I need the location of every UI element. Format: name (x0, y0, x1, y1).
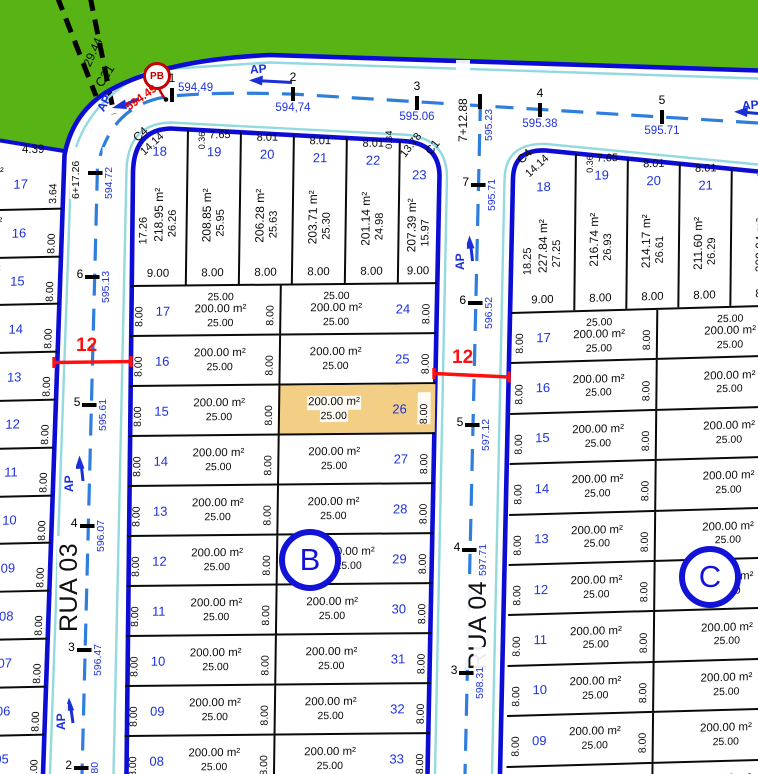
lot-rotated-dims: 206.28 m²25.63 (253, 166, 280, 267)
lot-parcel[interactable]: 8.0010200.00 m²25.008.00 (507, 663, 653, 715)
lot-parcel[interactable]: 200.00 m²25.00288.00 (276, 484, 434, 534)
lot-bottom-dim: 8.00 (693, 289, 716, 307)
lot-parcel[interactable]: 8.0016200.00 m²25.008.00 (129, 336, 279, 385)
lot-area: 200.00 m² (194, 347, 246, 361)
lot-bottom-dim: 25.00 (585, 386, 611, 399)
lot-bottom-dim: 25.00 (582, 739, 608, 752)
lot-bottom-dim: 25.00 (202, 711, 228, 724)
lot-parcel[interactable]: 23207.39 m²15.979.00 (397, 141, 439, 283)
lot-row: 8.0010200.00 m²25.008.00200.00 m²25.0031… (125, 632, 432, 685)
station-tick (465, 423, 480, 427)
lot-row-strip[interactable]: 138.00 (0, 351, 57, 400)
lot-parcel[interactable]: 8.0009200.00 m²25.008.00 (507, 713, 653, 765)
lot-top-dim: 25.00 (586, 316, 612, 329)
lot-parcel[interactable]: 200.00 m²25.00268.00 (278, 384, 436, 434)
lot-side-dim: 8.00 (512, 624, 523, 656)
station-number: 4 (530, 87, 550, 99)
lot-rotated-dims: 17.26218.95 m²26.26 (138, 163, 179, 268)
lot-area: 200.00 m² (569, 675, 621, 690)
lot-number: 16 (6, 225, 33, 241)
lot-number: 06 (0, 703, 16, 719)
station-number: 5 (447, 416, 463, 428)
lot-dims: 25.00200.00 m²25.00 (181, 291, 261, 330)
lot-parcel[interactable]: 8.0011200.00 m²25.008.00 (508, 612, 654, 664)
lot-dims: 200.00 m²25.00 (663, 368, 758, 398)
lot-parcel[interactable]: 8.0013200.00 m²25.008.00 (509, 512, 655, 564)
lot-right-dim: 26.93 (603, 233, 614, 261)
lot-dims: 200.00 m²25.00 (560, 473, 635, 501)
lot-side-dim: 8.00 (35, 548, 47, 588)
station-tick (415, 96, 419, 110)
lot-dims: 200.00 m²25.00 (176, 647, 255, 674)
lot-row-strip[interactable]: ²168.00 (0, 207, 62, 256)
station-elevation: 596.07 (95, 500, 108, 552)
lot-side-dim: 8.00 (128, 745, 139, 774)
lot-bottom-dim: 25.00 (319, 609, 345, 622)
lot-row: 8.0013200.00 m²25.008.00200.00 m²25.0028… (127, 482, 434, 535)
lot-parcel[interactable]: 8.0009200.00 m²25.008.00 (125, 686, 275, 735)
lot-dims: 200.00 m²25.00 (559, 574, 634, 602)
lot-area: 200.00 m² (188, 747, 240, 761)
lot-side-dim: 8.00 (259, 694, 270, 726)
lot-parcel[interactable]: 1817.26218.95 m²26.269.00 (131, 131, 187, 285)
lot-left-dim: 17.26 (138, 217, 149, 245)
station-elevation: 596.80 (89, 742, 102, 774)
lot-area: 211.60 m² (692, 217, 705, 270)
lot-side-dim: 8.00 (264, 344, 275, 376)
lot-area: 208.85 m² (200, 188, 213, 242)
lot-parcel[interactable]: 200.00 m²25.00 (651, 759, 758, 774)
lot-parcel[interactable]: 200.00 m²25.00 (652, 659, 758, 711)
lot-parcel[interactable]: 8.0120214.17 m²26.618.00 (625, 157, 679, 308)
lot-row: 8.0016200.00 m²25.008.00200.00 m²25.0025… (129, 332, 436, 385)
station-elevation: 597.12 (480, 399, 493, 451)
lot-top-dim: 8.01 (643, 158, 665, 171)
lot-top-dims: 8.01 (257, 132, 279, 147)
block-b-badge: B (279, 529, 341, 591)
lot-area: 200.00 m² (572, 423, 624, 438)
lot-side-dim: 8.00 (421, 292, 432, 324)
lot-side-dim: 8.00 (419, 442, 430, 474)
lot-dims: 200.00 m²25.00 (663, 418, 758, 448)
lot-rotated-dims: 18.25227.84 m²27.25 (522, 198, 563, 295)
lot-left-dim: 18.25 (523, 248, 534, 276)
lot-area-fragment: ² (0, 216, 2, 228)
lot-parcel[interactable]: 8.0015200.00 m²25.008.00 (510, 411, 656, 463)
lot-number: 15 (148, 403, 174, 418)
lot-parcel[interactable]: 8.0013200.00 m²25.008.00 (127, 486, 277, 535)
lot-side-dim: 8.00 (417, 592, 428, 624)
lot-parcel[interactable]: 200.00 m²25.00 (655, 407, 758, 459)
lot-side-dim: 8.00 (131, 495, 142, 527)
lot-bottom-dim: 25.00 (203, 611, 229, 624)
station-tick (462, 548, 477, 552)
lot-top-dims: 8.01 (309, 135, 331, 150)
lot-parcel[interactable]: 8.0122209.04 m²25.978.00 (729, 167, 758, 306)
lot-dims: 200.00 m²25.00 (660, 670, 758, 700)
lot-top-dim: 25.00 (207, 291, 233, 304)
lot-side-dim: 8.00 (512, 574, 523, 606)
lot-dims: 200.00 m²25.00 (179, 447, 258, 474)
lot-side-dim: 8.00 (134, 295, 145, 327)
lot-area: 200.00 m² (308, 446, 360, 460)
lot-bottom-dim: 8.00 (589, 292, 612, 310)
lot-row-strip[interactable]: 118.00 (0, 446, 54, 495)
lot-top-dims: 8.01 (643, 158, 665, 174)
lot-row-strip[interactable]: 058.00 (0, 733, 44, 774)
section-line-rua04 (434, 368, 509, 383)
lot-number: 05 (0, 751, 15, 767)
lot-parcel[interactable]: 200.00 m²25.00258.00 (278, 334, 436, 384)
lot-number: 17 (7, 177, 34, 193)
lot-row-strip[interactable]: 128.00 (0, 399, 55, 448)
lot-row-strip[interactable]: 098.00 (0, 542, 51, 591)
lot-parcel[interactable]: 8.0012200.00 m²25.008.00 (127, 536, 277, 585)
station-elevation: 594.72 (103, 147, 116, 199)
lot-area: 200.00 m² (571, 524, 623, 539)
lot-parcel[interactable]: 25.00200.00 m²25.00248.00 (279, 284, 437, 334)
lot-number: 08 (144, 753, 170, 768)
pb-marker-dot (164, 97, 169, 102)
lot-row-strip[interactable]: ²158.00 (0, 255, 60, 304)
lot-number: 19 (594, 167, 609, 186)
station-elevation: 596.47 (92, 624, 105, 676)
lot-rotated-dims: 209.04 m²25.97 (754, 202, 758, 289)
lot-bottom-dim: 25.00 (583, 638, 609, 651)
lot-number: 10 (527, 682, 553, 698)
lot-dims: 200.00 m²25.00 (285, 446, 383, 473)
lot-bottom-dim: 9.00 (147, 268, 170, 285)
lot-side-dim: 8.00 (261, 594, 272, 626)
block-c-badge: C (679, 546, 741, 608)
lot-side-dim: 8.00 (417, 542, 428, 574)
station-number: 5 (64, 396, 80, 408)
station-tick (170, 88, 174, 102)
lot-side-dim: 8.00 (414, 742, 425, 774)
lot-number: 12 (146, 553, 172, 568)
lot-parcel[interactable]: 0.367.6519208.85 m²25.958.00 (185, 129, 240, 285)
lot-side-dim: 8.00 (263, 444, 274, 476)
lot-right-dim: 26.29 (707, 237, 718, 265)
block-b-letter: B (300, 542, 321, 578)
lot-bottom-dim: 25.00 (321, 459, 347, 472)
lot-side-dim: 8.00 (265, 294, 276, 326)
lot-side-dim: 8.00 (639, 520, 650, 552)
station-number: 6 (450, 294, 466, 306)
lot-dims: 200.00 m²25.00 (177, 547, 256, 574)
lot-number: 20 (646, 173, 661, 192)
station-tick (88, 171, 103, 175)
lot-row: 8.0009200.00 m²25.008.00200.00 m²25.00 (507, 707, 758, 765)
lot-bottom-dim: 25.00 (714, 635, 740, 648)
lot-number: 31 (385, 651, 411, 666)
station-elevation: 595.61 (97, 379, 110, 431)
lot-dims: 200.00 m²25.00 (557, 725, 632, 753)
station-tick (82, 403, 97, 407)
lot-side-dim: 8.00 (638, 671, 649, 703)
lot-bottom-dim: 25.00 (322, 359, 348, 372)
lot-parcel[interactable]: 8.0016200.00 m²25.008.00 (510, 360, 656, 412)
lot-dims: 200.00 m²25.00 (558, 624, 633, 652)
station-number: 5 (652, 94, 672, 106)
lot-parcel[interactable]: 200.00 m²25.00 (654, 457, 758, 509)
station-elevation: 597.71 (477, 524, 490, 576)
lot-row: 8.001725.00200.00 m²25.008.0025.00200.00… (130, 282, 437, 335)
lot-parcel[interactable]: 8.0121211.60 m²26.298.00 (677, 162, 731, 307)
lot-parcel[interactable]: 200.00 m²25.00 (655, 356, 758, 408)
station-number: 2 (283, 71, 303, 83)
lot-top-side-dim: 0.36 (198, 129, 207, 149)
lot-area: 214.17 m² (640, 215, 653, 269)
lot-side-dim: 8.00 (638, 621, 649, 653)
lot-number: 30 (386, 601, 412, 616)
lot-parcel[interactable]: 8.0008200.00 m²25.008.00 (506, 764, 652, 774)
lot-number: 08 (0, 608, 20, 624)
lot-side-dim: 8.00 (261, 544, 272, 576)
lot-bottom-dim: 25.00 (715, 483, 741, 496)
lot-bottom-dim: 25.00 (713, 685, 739, 698)
lot-number: 23 (412, 167, 427, 186)
lot-bottom-dim: 25.00 (318, 659, 344, 672)
lot-row-strip[interactable]: 068.00 (0, 685, 46, 734)
station-elevation: 595.38 (508, 119, 572, 131)
ap-label-rua03-low: AP (54, 704, 68, 730)
station-tick (291, 87, 295, 101)
lot-area: 200.00 m² (573, 328, 625, 343)
lot-top-dims: 0.367.65 (586, 152, 619, 168)
lot-side-dim: 8.00 (132, 445, 143, 477)
lot-area: 200.00 m² (310, 302, 362, 316)
lot-parcel[interactable]: 8.0121203.71 m²25.308.00 (291, 135, 346, 284)
lot-bottom-dim: 25.00 (205, 461, 231, 474)
lot-row: 8.0014200.00 m²25.008.00200.00 m²25.0027… (128, 432, 435, 485)
lot-parcel[interactable]: 200.00 m²25.00308.00 (275, 584, 433, 634)
lot-dims: 25.00200.00 m²25.00 (287, 289, 385, 328)
lot-number: 33 (384, 751, 410, 766)
lot-parcel[interactable]: 200.00 m²25.00328.00 (274, 684, 432, 734)
station-elevation: 595.71 (486, 159, 499, 211)
lot-side-dim: 8.00 (33, 596, 45, 636)
lot-number: 12 (528, 581, 554, 597)
station-elevation: 594,49 (178, 83, 213, 95)
lot-number: 09 (526, 733, 552, 749)
lot-area: 200.00 m² (193, 397, 245, 411)
lot-row: 8.0011200.00 m²25.008.00200.00 m²25.00 (508, 606, 758, 664)
lot-row-strip[interactable]: 078.00 (0, 638, 48, 687)
lot-dims: 200.00 m²25.00 (662, 519, 758, 549)
station-tick (468, 301, 483, 305)
lot-parcel[interactable]: 200.00 m²25.00 (652, 709, 758, 761)
lot-parcel[interactable]: 8.0010200.00 m²25.008.00 (125, 636, 275, 685)
lot-dims: 200.00 m²25.00 (174, 747, 253, 774)
lot-top-dim: 7.65 (597, 152, 619, 165)
lot-side-dim: 8.00 (513, 473, 524, 505)
lot-parcel[interactable]: 8.0014200.00 m²25.008.00 (509, 461, 655, 513)
lot-number: 12 (0, 417, 26, 433)
lot-number: 15 (529, 430, 555, 446)
lot-top-dims: 8.01 (695, 162, 717, 178)
lot-row-strip[interactable]: ²173.64 (0, 160, 63, 209)
lot-number: 27 (388, 451, 414, 466)
lot-parcel[interactable]: 25.00200.00 m²25.00 (656, 306, 758, 358)
lot-parcel[interactable]: 8.0012200.00 m²25.008.00 (508, 562, 654, 614)
ap-label-rua04: AP (453, 244, 467, 270)
lot-bottom-dim: 25.00 (584, 538, 610, 551)
lot-side-dim: 8.00 (129, 645, 140, 677)
lot-area: 227.84 m² (537, 219, 550, 273)
lot-dims: 200.00 m²25.00 (178, 497, 257, 524)
lot-side-dim: 8.00 (258, 744, 269, 774)
block-c: 1818.25227.84 m²27.259.000.367.6519216.7… (506, 139, 758, 774)
lot-right-dim: 26.26 (167, 209, 178, 237)
lot-row-strip[interactable]: ²148.00 (0, 303, 59, 352)
station-number: 4 (62, 517, 78, 529)
lot-row: 8.0011200.00 m²25.008.00200.00 m²25.0030… (126, 582, 433, 635)
lot-right-dim: 27.25 (552, 240, 563, 268)
lot-bottom-dim: 25.00 (320, 509, 346, 522)
ap-label-top: AP (250, 62, 268, 76)
lot-rotated-dims: 214.17 m²26.61 (639, 192, 666, 292)
street-name-rua03: RUA 03 (57, 536, 82, 632)
lot-parcel[interactable]: 8.001725.00200.00 m²25.008.00 (511, 310, 657, 362)
lot-dims: 200.00 m²25.00 (284, 496, 382, 523)
lot-dims: 200.00 m²25.00 (281, 746, 379, 773)
lot-number: 13 (147, 503, 173, 518)
lot-parcel[interactable]: 200.00 m²25.00318.00 (274, 634, 432, 684)
station-tick (85, 275, 100, 279)
lot-side-dim: 8.00 (514, 423, 525, 455)
strip-top-dim: 4.39 (22, 144, 44, 156)
lot-dims: 200.00 m²25.00 (177, 597, 256, 624)
lot-row-strip[interactable]: 088.00 (0, 590, 49, 639)
lot-number: 24 (390, 301, 416, 316)
subdivision-plat-map: ²173.64²168.00²158.00²148.00138.00128.00… (0, 0, 758, 774)
station-number: 3 (59, 641, 75, 653)
lot-parcel[interactable]: 8.0011200.00 m²25.008.00 (126, 586, 276, 635)
station-number: 3 (407, 80, 427, 92)
lot-parcel[interactable]: 200.00 m²25.00278.00 (277, 434, 435, 484)
lot-area: 218.95 m² (152, 188, 165, 242)
station-elevation: 598.31 (474, 647, 487, 699)
lot-number: 25 (389, 351, 415, 366)
lot-parcel[interactable]: 8.001725.00200.00 m²25.008.00 (130, 286, 280, 335)
lot-parcel[interactable]: 200.00 m²25.00 (653, 608, 758, 660)
lot-bottom-dim: 25.00 (716, 433, 742, 446)
lot-parcel[interactable]: 8.0014200.00 m²25.008.00 (128, 436, 278, 485)
lot-area: 216.74 m² (588, 213, 601, 267)
rua04-start-elevation: 595.23 (483, 83, 496, 141)
lot-bottom-dim: 25.00 (201, 761, 227, 774)
lot-bottom-dim: 25.00 (206, 411, 232, 424)
lot-side-dim: 8.00 (36, 500, 48, 540)
lot-bottom-dim: 8.00 (307, 266, 330, 283)
lot-top-dim: 8.01 (362, 138, 384, 150)
lot-side-dim: 8.00 (43, 309, 55, 349)
lot-number: 16 (149, 353, 175, 368)
lot-parcel[interactable]: 200.00 m²25.00338.00 (273, 734, 431, 774)
lot-bottom-dim: 25.00 (207, 317, 233, 330)
lot-area: 207.39 m² (405, 198, 418, 252)
lot-number: 21 (698, 177, 713, 196)
lot-area-fragment: ² (0, 263, 1, 275)
lot-dims: 25.00200.00 m²25.00 (664, 311, 758, 353)
lot-right-dim: 25.63 (268, 210, 279, 238)
lot-right-dim: 25.95 (215, 209, 226, 237)
lot-row: 8.0008200.00 m²25.008.00200.00 m²25.0033… (124, 732, 431, 774)
lot-top-side-dim: 0.36 (586, 153, 595, 173)
lot-number: 28 (387, 501, 413, 516)
lot-side-dim: 8.00 (133, 395, 144, 427)
lot-parcel[interactable]: 8.0015200.00 m²25.008.00 (129, 386, 279, 435)
lot-area: 209.04 m² (754, 218, 758, 272)
lot-parcel[interactable]: 8.0122201.14 m²24.988.00 (344, 137, 399, 283)
lot-area: 200.00 m² (569, 725, 621, 740)
lot-bottom-dim: 25.00 (204, 511, 230, 524)
lot-dims: 200.00 m²25.00 (282, 696, 380, 723)
station-tick (77, 648, 92, 652)
lot-dims: 200.00 m²25.00 (559, 523, 634, 551)
lot-side-dim: 8.00 (637, 721, 648, 753)
lot-parcel[interactable]: 8.0120206.28 m²25.638.00 (238, 131, 293, 284)
lot-bottom-dim: 8.00 (641, 291, 664, 309)
lot-rotated-dims: 211.60 m²26.29 (692, 196, 719, 290)
lot-bottom-dim: 25.00 (206, 361, 232, 374)
lot-parcel[interactable]: 8.0008200.00 m²25.008.00 (124, 736, 274, 774)
lot-bottom-dim: 25.00 (585, 437, 611, 450)
lot-side-dim: 8.00 (641, 369, 652, 401)
lot-bottom-dim: 25.00 (320, 409, 348, 422)
lot-bottom-dim: 9.00 (531, 294, 554, 312)
lot-rotated-dims: 216.74 m²26.93 (587, 186, 614, 293)
lot-side-dim: 8.00 (30, 692, 42, 732)
lot-number: 14 (529, 481, 555, 497)
lot-right-dim: 25.30 (321, 212, 332, 240)
lot-area: 200.00 m² (308, 496, 360, 510)
lot-top-dim: 8.01 (257, 132, 279, 144)
lot-area: 200.00 m² (191, 547, 243, 561)
lot-side-dim: 8.00 (134, 345, 145, 377)
lot-side-dim: 8.00 (263, 394, 274, 426)
lot-area: 200.00 m² (189, 697, 241, 711)
lot-side-dim: 8.00 (418, 492, 429, 524)
lot-side-dim: 8.00 (46, 214, 58, 254)
section-label-rua04: 12 (452, 348, 473, 368)
lot-number: 29 (386, 551, 412, 566)
lot-dims: 200.00 m²25.00 (282, 646, 380, 673)
lot-number: 14 (3, 321, 30, 337)
station-tick (74, 766, 89, 770)
lot-row-strip[interactable]: 108.00 (0, 494, 52, 543)
lot-top-dims: 8.01 (362, 138, 384, 153)
lot-area: 200.00 m² (701, 621, 753, 636)
lot-number: 19 (207, 144, 222, 163)
lot-area: 200.00 m² (703, 470, 755, 485)
lot-number: 17 (150, 303, 176, 318)
station-number: 3 (441, 664, 457, 676)
lot-side-dim: 8.00 (640, 469, 651, 501)
station-elevation: 595.71 (630, 126, 694, 138)
lot-side-dim: 8.00 (44, 261, 56, 301)
station-number: 7 (453, 176, 469, 188)
lot-parcel[interactable]: 0.367.6519216.74 m²26.938.00 (573, 152, 627, 310)
lot-area: 200.00 m² (305, 696, 357, 710)
lot-number: 18 (536, 179, 551, 198)
lot-bottom-dim: 25.00 (204, 561, 230, 574)
lot-parcel[interactable]: 1818.25227.84 m²27.259.00 (511, 158, 575, 312)
lot-dims: 200.00 m²25.00 (661, 620, 758, 650)
lot-side-dim: 8.00 (28, 739, 40, 774)
station-tick (471, 183, 486, 187)
